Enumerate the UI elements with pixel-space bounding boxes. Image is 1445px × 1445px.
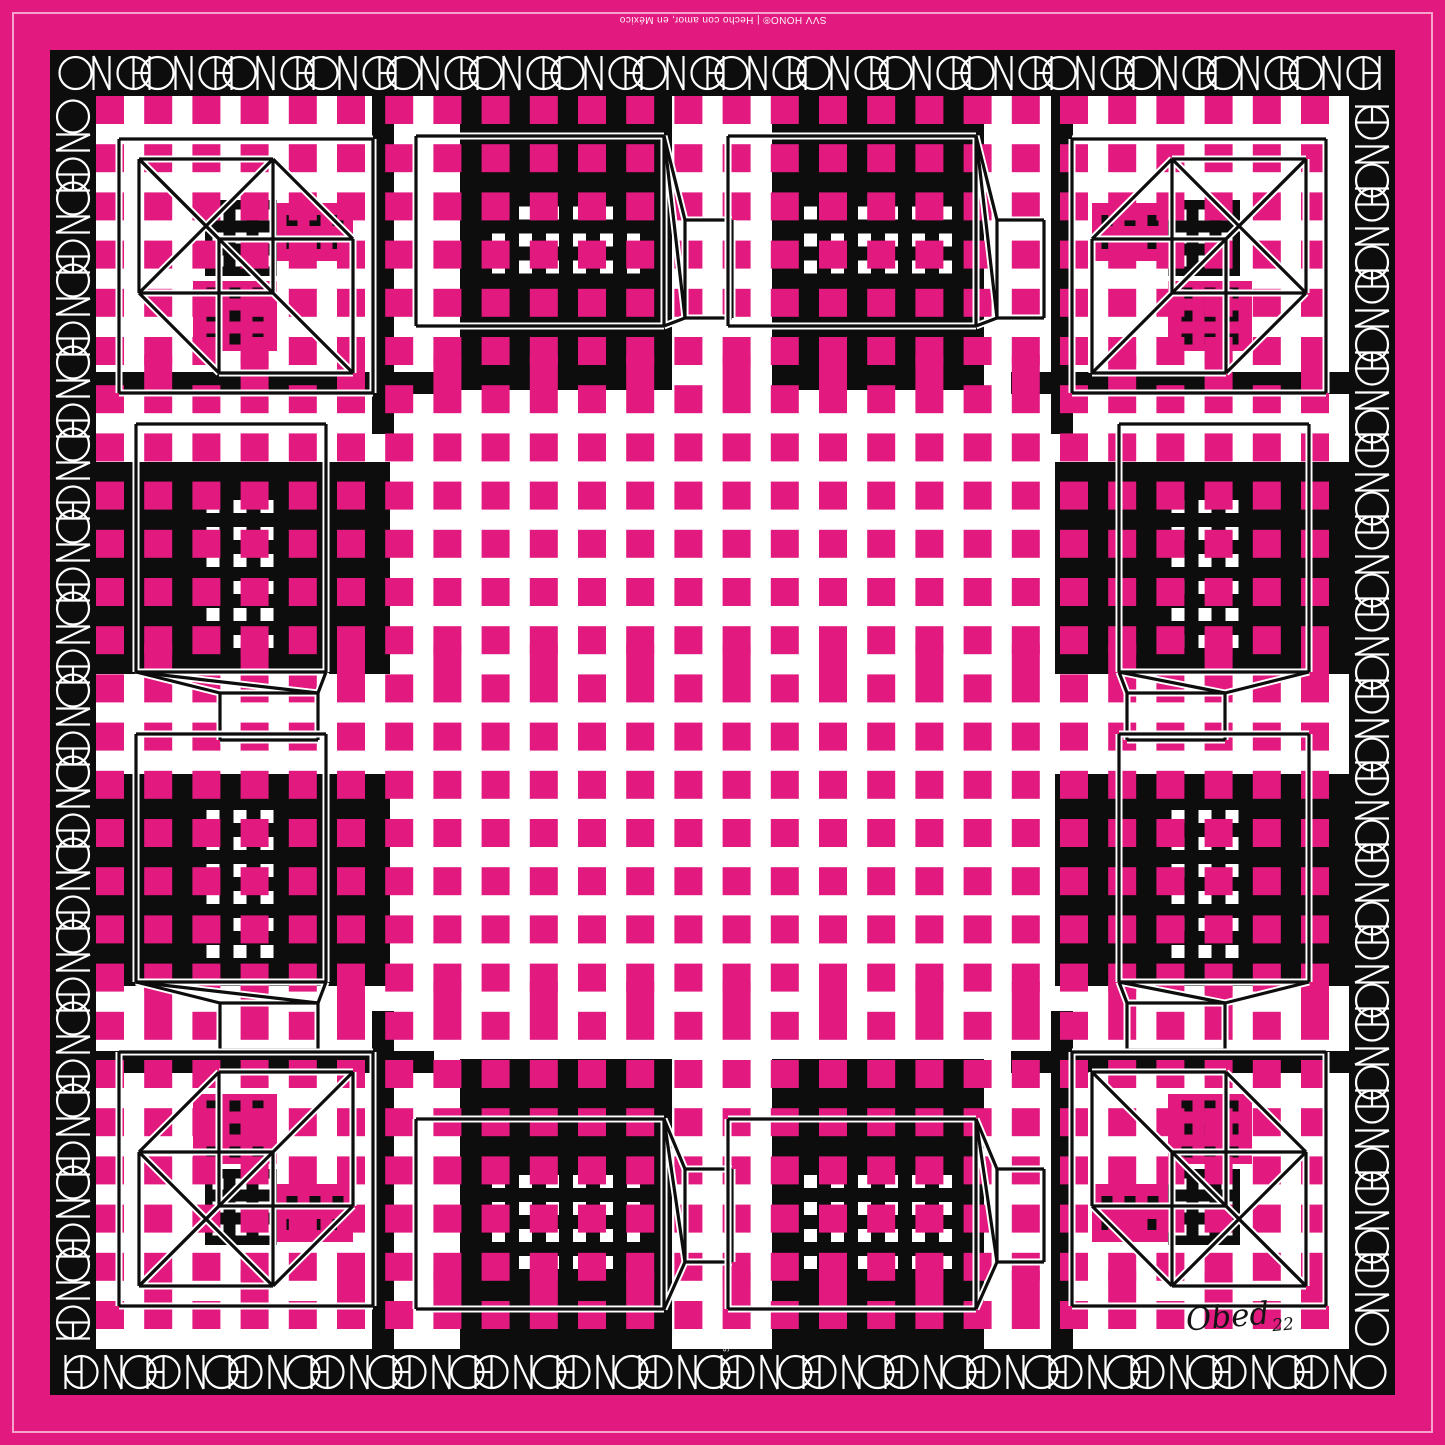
top-caption: SVV HONO® | Hecho con amor, en México [619,14,826,25]
signature-year: 22 [1271,1314,1294,1336]
scarf-pattern-svg [0,0,1445,1445]
scarf-artwork: SVV HONO® | Hecho con amor, en México SV… [0,0,1445,1445]
signature-name: Obed [1184,1295,1270,1338]
svv-border-mark: SVV [722,1333,731,1352]
